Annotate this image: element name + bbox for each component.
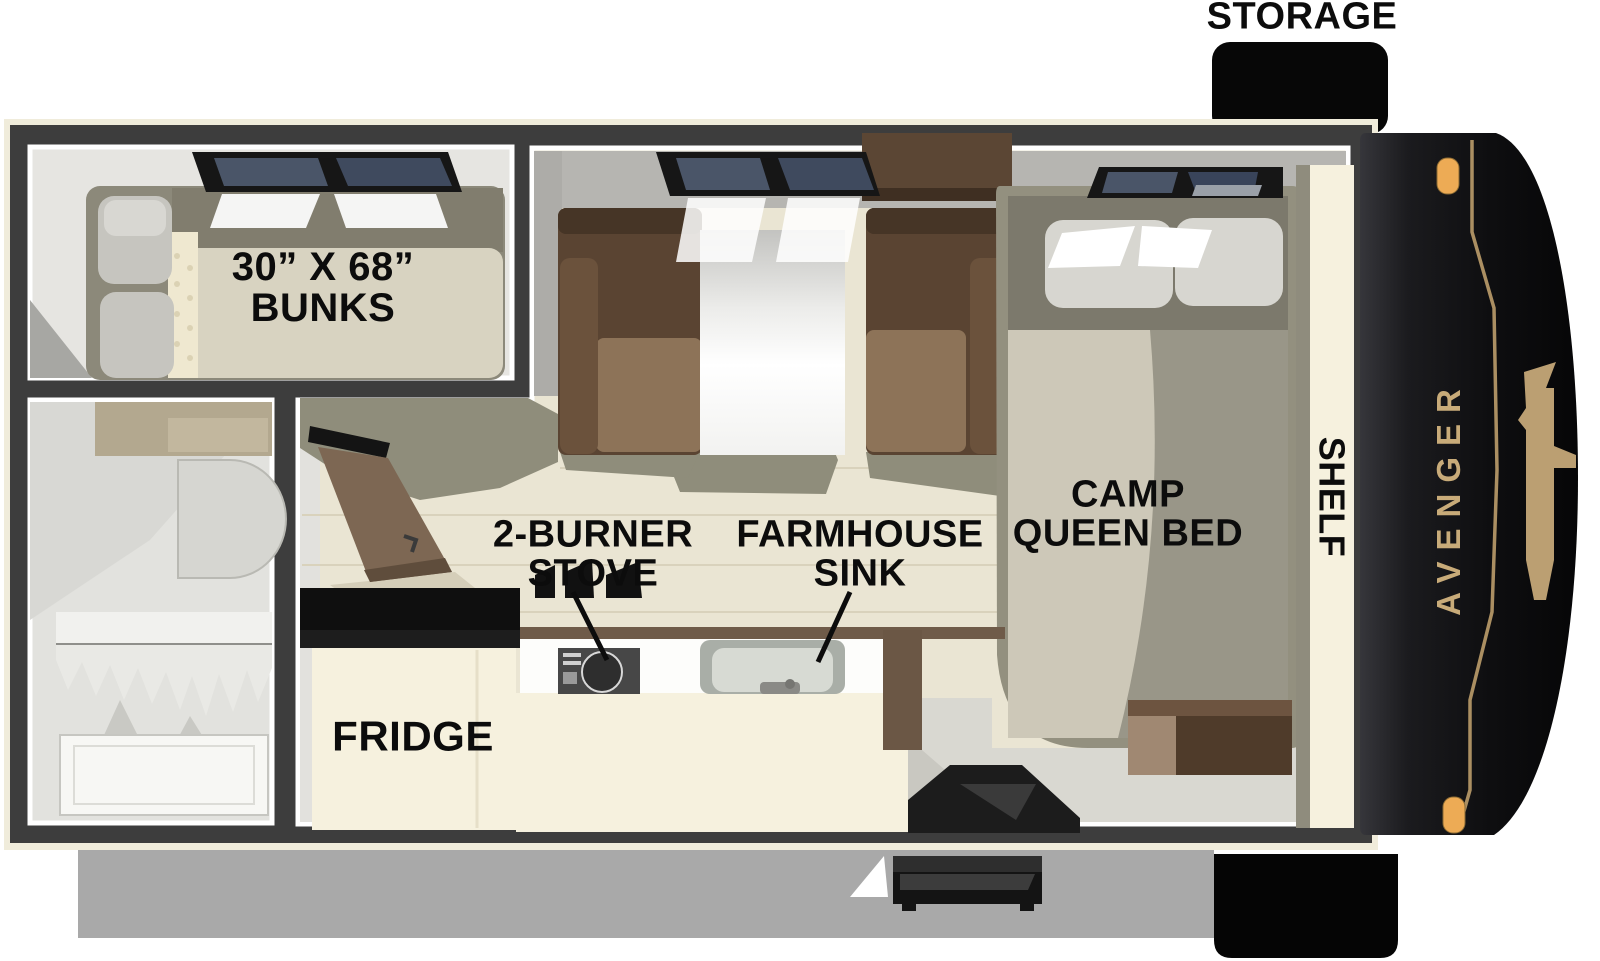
wall-face-bunk-side <box>534 151 562 396</box>
dinette-right-seat <box>866 208 1010 455</box>
label-bunks-line2: BUNKS <box>232 288 414 329</box>
entry-steps <box>893 856 1042 911</box>
label-shelf: SHELF <box>1313 437 1350 558</box>
fridge-counter-front <box>300 630 520 648</box>
label-stove: 2-BURNER STOVE <box>493 515 693 593</box>
counter-front <box>516 693 908 832</box>
front-cap <box>1360 133 1578 835</box>
label-bunks: 30” X 68” BUNKS <box>232 247 414 329</box>
floorplan-graphics <box>0 0 1600 961</box>
stove <box>558 648 640 694</box>
label-sink-line2: SINK <box>736 554 983 593</box>
shelf-edge <box>1296 165 1310 828</box>
dinette-table <box>700 230 845 455</box>
bed-window <box>1087 167 1283 198</box>
label-bed-line2: QUEEN BED <box>1013 514 1243 553</box>
label-stove-line1: 2-BURNER <box>493 513 693 555</box>
label-camp-queen-bed: CAMP QUEEN BED <box>1013 475 1243 553</box>
bunk-pillow-bottom <box>100 292 174 378</box>
label-bunks-line1: 30” X 68” <box>232 245 414 289</box>
rv-floorplan: STORAGE 30” X 68” BUNKS 2-BURNER STOVE F… <box>0 0 1600 961</box>
marker-light-bottom <box>1443 797 1465 833</box>
label-bed-line1: CAMP <box>1071 473 1185 515</box>
label-sink-line1: FARMHOUSE <box>736 513 983 555</box>
shower-curtain-top <box>56 612 272 645</box>
counter-end-panel <box>883 630 922 750</box>
toilet-tank <box>168 418 268 452</box>
fridge-countertop <box>300 588 520 633</box>
label-sink: FARMHOUSE SINK <box>736 515 983 593</box>
toilet <box>178 460 286 578</box>
underbody-storage-box <box>1214 854 1398 958</box>
bunk-pillow-highlight <box>104 200 166 236</box>
label-stove-line2: STOVE <box>493 554 693 593</box>
label-storage: STORAGE <box>1207 0 1398 36</box>
bed-foot-bench <box>1128 700 1292 775</box>
brand-avenger: AVENGER <box>1432 378 1466 616</box>
ground-shadow <box>78 845 1214 938</box>
label-fridge: FRIDGE <box>332 716 494 759</box>
marker-light-top <box>1437 158 1459 194</box>
overhead-cabinet-edge <box>862 188 1012 201</box>
